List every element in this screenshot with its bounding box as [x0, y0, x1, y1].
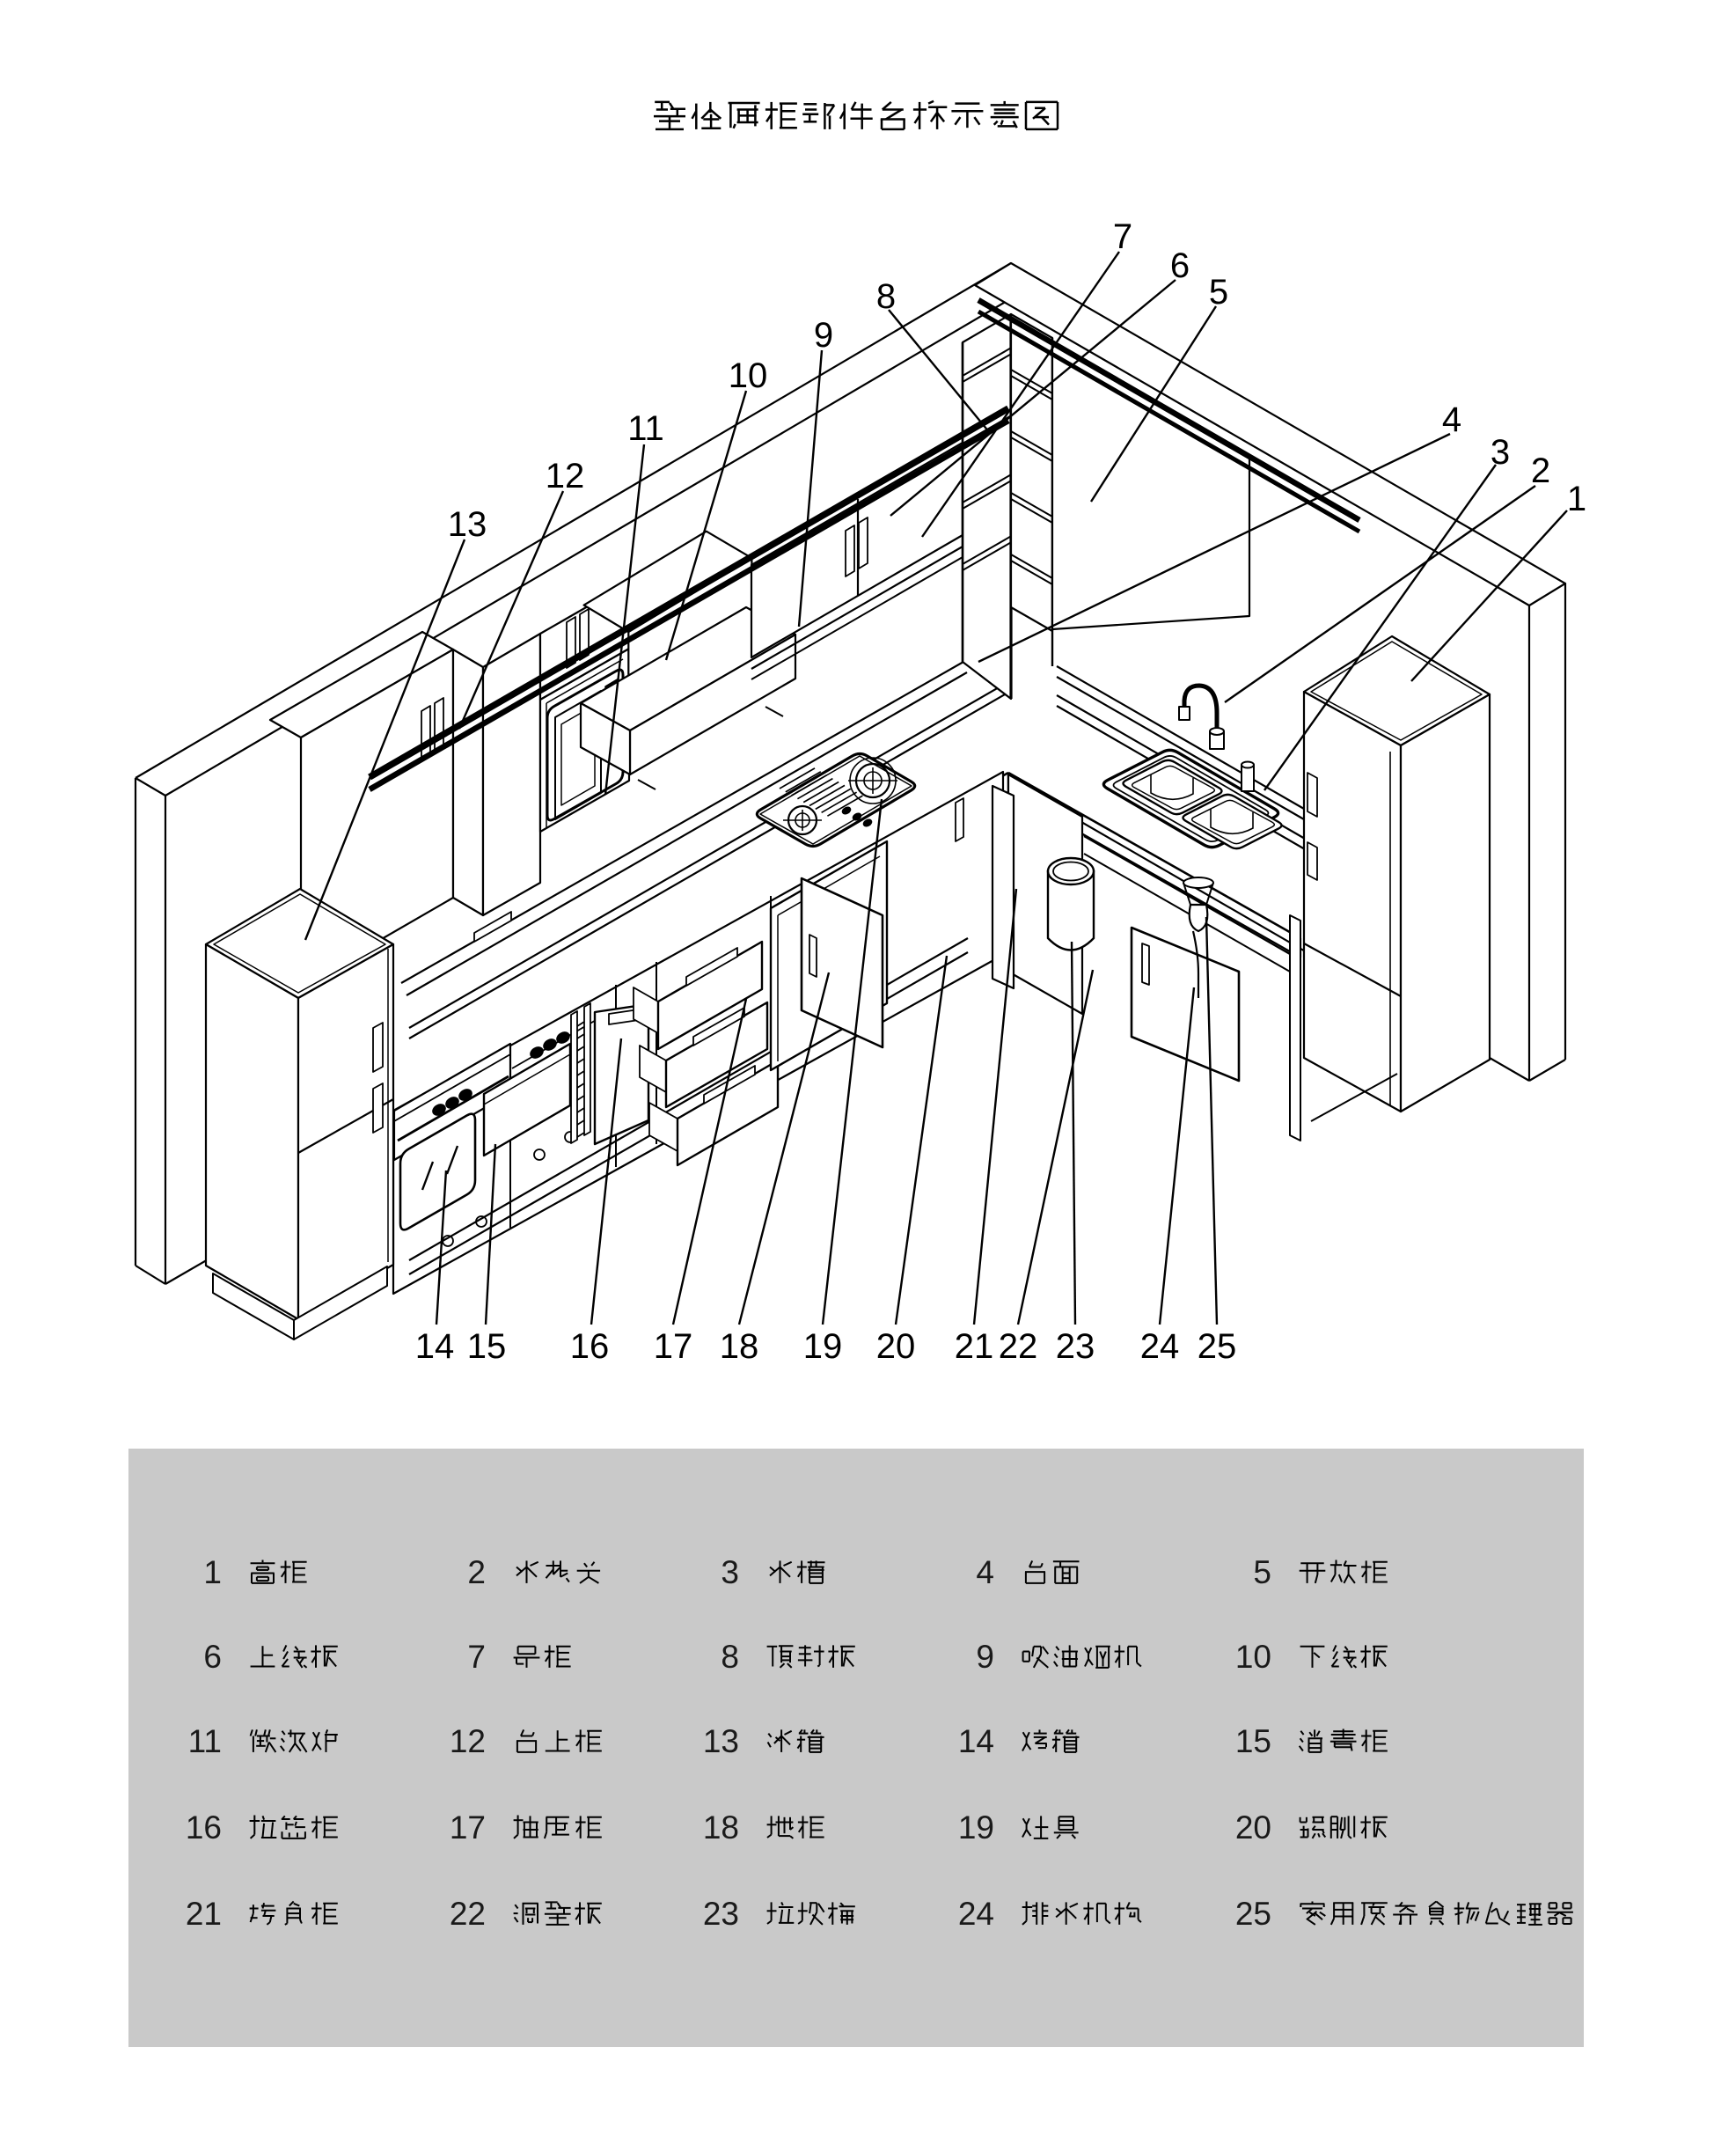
- svg-text:12: 12: [546, 457, 585, 495]
- svg-text:17: 17: [654, 1327, 693, 1366]
- svg-text:2: 2: [1531, 451, 1550, 490]
- svg-text:7: 7: [1113, 217, 1132, 256]
- svg-text:10: 10: [1235, 1639, 1271, 1675]
- svg-text:9: 9: [814, 316, 833, 355]
- svg-text:25: 25: [1198, 1327, 1237, 1366]
- svg-text:21: 21: [955, 1327, 994, 1366]
- svg-text:14: 14: [958, 1723, 994, 1759]
- svg-text:13: 13: [448, 505, 487, 544]
- svg-text:19: 19: [803, 1327, 843, 1366]
- svg-text:11: 11: [188, 1723, 222, 1759]
- svg-text:6: 6: [203, 1639, 222, 1675]
- svg-text:21: 21: [186, 1896, 222, 1932]
- svg-text:22: 22: [450, 1896, 486, 1932]
- svg-text:1: 1: [203, 1554, 222, 1590]
- svg-text:20: 20: [876, 1327, 916, 1366]
- svg-text:2: 2: [467, 1554, 486, 1590]
- svg-text:1: 1: [1567, 480, 1586, 518]
- svg-text:8: 8: [721, 1639, 739, 1675]
- svg-text:18: 18: [703, 1809, 739, 1846]
- svg-text:5: 5: [1209, 273, 1228, 312]
- svg-text:18: 18: [720, 1327, 759, 1366]
- svg-text:24: 24: [1140, 1327, 1180, 1366]
- svg-text:19: 19: [958, 1809, 994, 1846]
- svg-text:23: 23: [1056, 1327, 1095, 1366]
- svg-text:24: 24: [958, 1896, 994, 1932]
- svg-text:5: 5: [1253, 1554, 1271, 1590]
- svg-text:14: 14: [415, 1327, 455, 1366]
- svg-text:15: 15: [467, 1327, 507, 1366]
- svg-text:4: 4: [976, 1554, 994, 1590]
- svg-text:11: 11: [627, 409, 664, 448]
- svg-text:8: 8: [876, 277, 896, 316]
- svg-text:23: 23: [703, 1896, 739, 1932]
- svg-text:6: 6: [1170, 246, 1190, 285]
- svg-text:17: 17: [450, 1809, 486, 1846]
- svg-text:20: 20: [1235, 1809, 1271, 1846]
- svg-text:25: 25: [1235, 1896, 1271, 1932]
- svg-text:13: 13: [703, 1723, 739, 1759]
- svg-text:12: 12: [450, 1723, 486, 1759]
- svg-text:16: 16: [186, 1809, 222, 1846]
- svg-text:7: 7: [467, 1639, 486, 1675]
- svg-text:16: 16: [570, 1327, 610, 1366]
- svg-text:3: 3: [1491, 433, 1510, 472]
- svg-text:22: 22: [999, 1327, 1038, 1366]
- svg-text:9: 9: [976, 1639, 994, 1675]
- svg-text:15: 15: [1235, 1723, 1271, 1759]
- svg-text:4: 4: [1442, 400, 1461, 439]
- svg-text:3: 3: [721, 1554, 739, 1590]
- svg-text:10: 10: [729, 356, 768, 395]
